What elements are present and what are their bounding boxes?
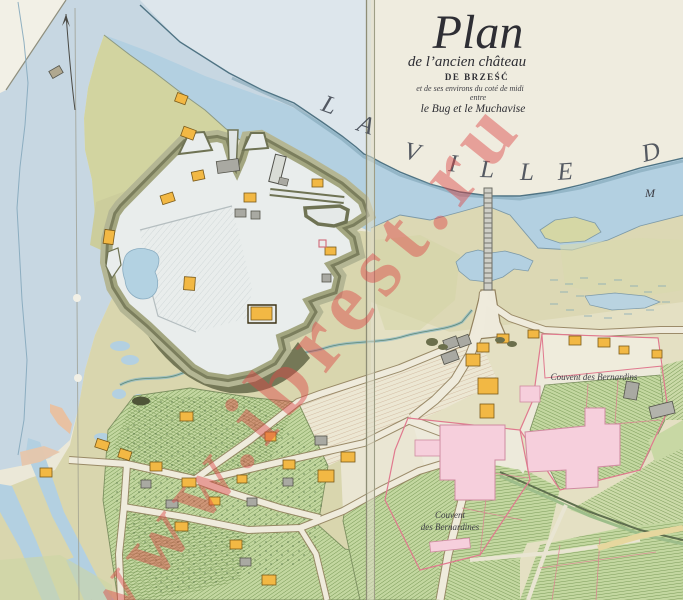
svg-text:DE BRZEŚĆ: DE BRZEŚĆ: [445, 72, 509, 82]
svg-text:M: M: [644, 186, 656, 200]
svg-text:L: L: [519, 159, 534, 186]
svg-text:Couvent des Bernardins: Couvent des Bernardins: [551, 372, 638, 382]
svg-text:E: E: [556, 158, 574, 186]
svg-text:des Bernardines: des Bernardines: [421, 522, 480, 532]
svg-text:Couvent: Couvent: [435, 510, 465, 520]
svg-text:de l’ancien château: de l’ancien château: [408, 54, 526, 70]
svg-text:Plan: Plan: [432, 6, 524, 59]
